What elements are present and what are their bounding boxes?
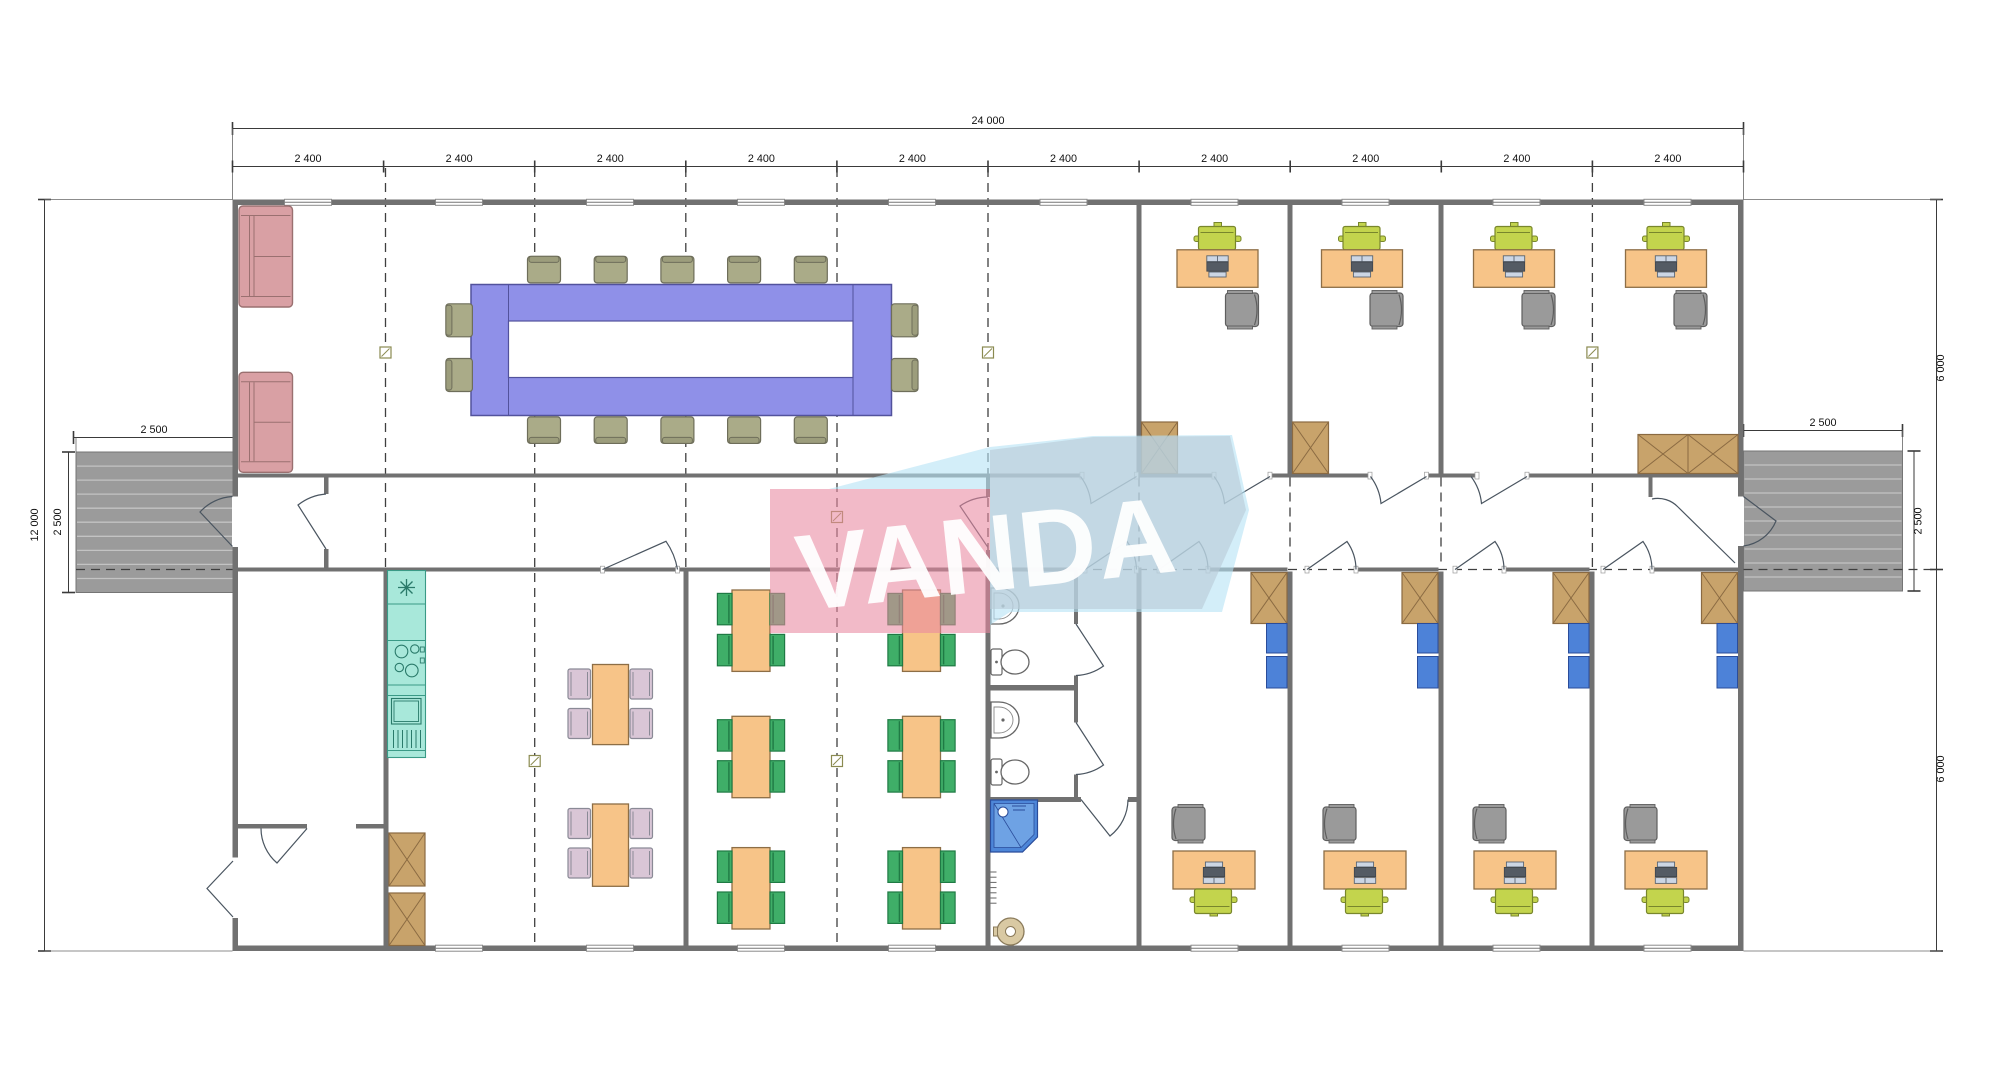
- svg-text:2 400: 2 400: [446, 153, 473, 165]
- svg-text:24 000: 24 000: [971, 115, 1004, 127]
- svg-text:2 400: 2 400: [1050, 153, 1077, 165]
- svg-text:2 500: 2 500: [52, 508, 64, 535]
- svg-text:2 400: 2 400: [597, 153, 624, 165]
- svg-text:2 500: 2 500: [1913, 507, 1925, 534]
- svg-text:6 000: 6 000: [1935, 354, 1947, 381]
- svg-text:2 400: 2 400: [748, 153, 775, 165]
- svg-text:2 500: 2 500: [140, 424, 167, 436]
- svg-text:2 400: 2 400: [295, 153, 322, 165]
- svg-text:2 400: 2 400: [899, 153, 926, 165]
- svg-text:12 000: 12 000: [29, 508, 41, 541]
- svg-text:2 400: 2 400: [1503, 153, 1530, 165]
- svg-text:2 400: 2 400: [1201, 153, 1228, 165]
- svg-text:6 000: 6 000: [1935, 755, 1947, 782]
- svg-text:2 500: 2 500: [1809, 417, 1836, 429]
- svg-text:2 400: 2 400: [1654, 153, 1681, 165]
- svg-text:2 400: 2 400: [1352, 153, 1379, 165]
